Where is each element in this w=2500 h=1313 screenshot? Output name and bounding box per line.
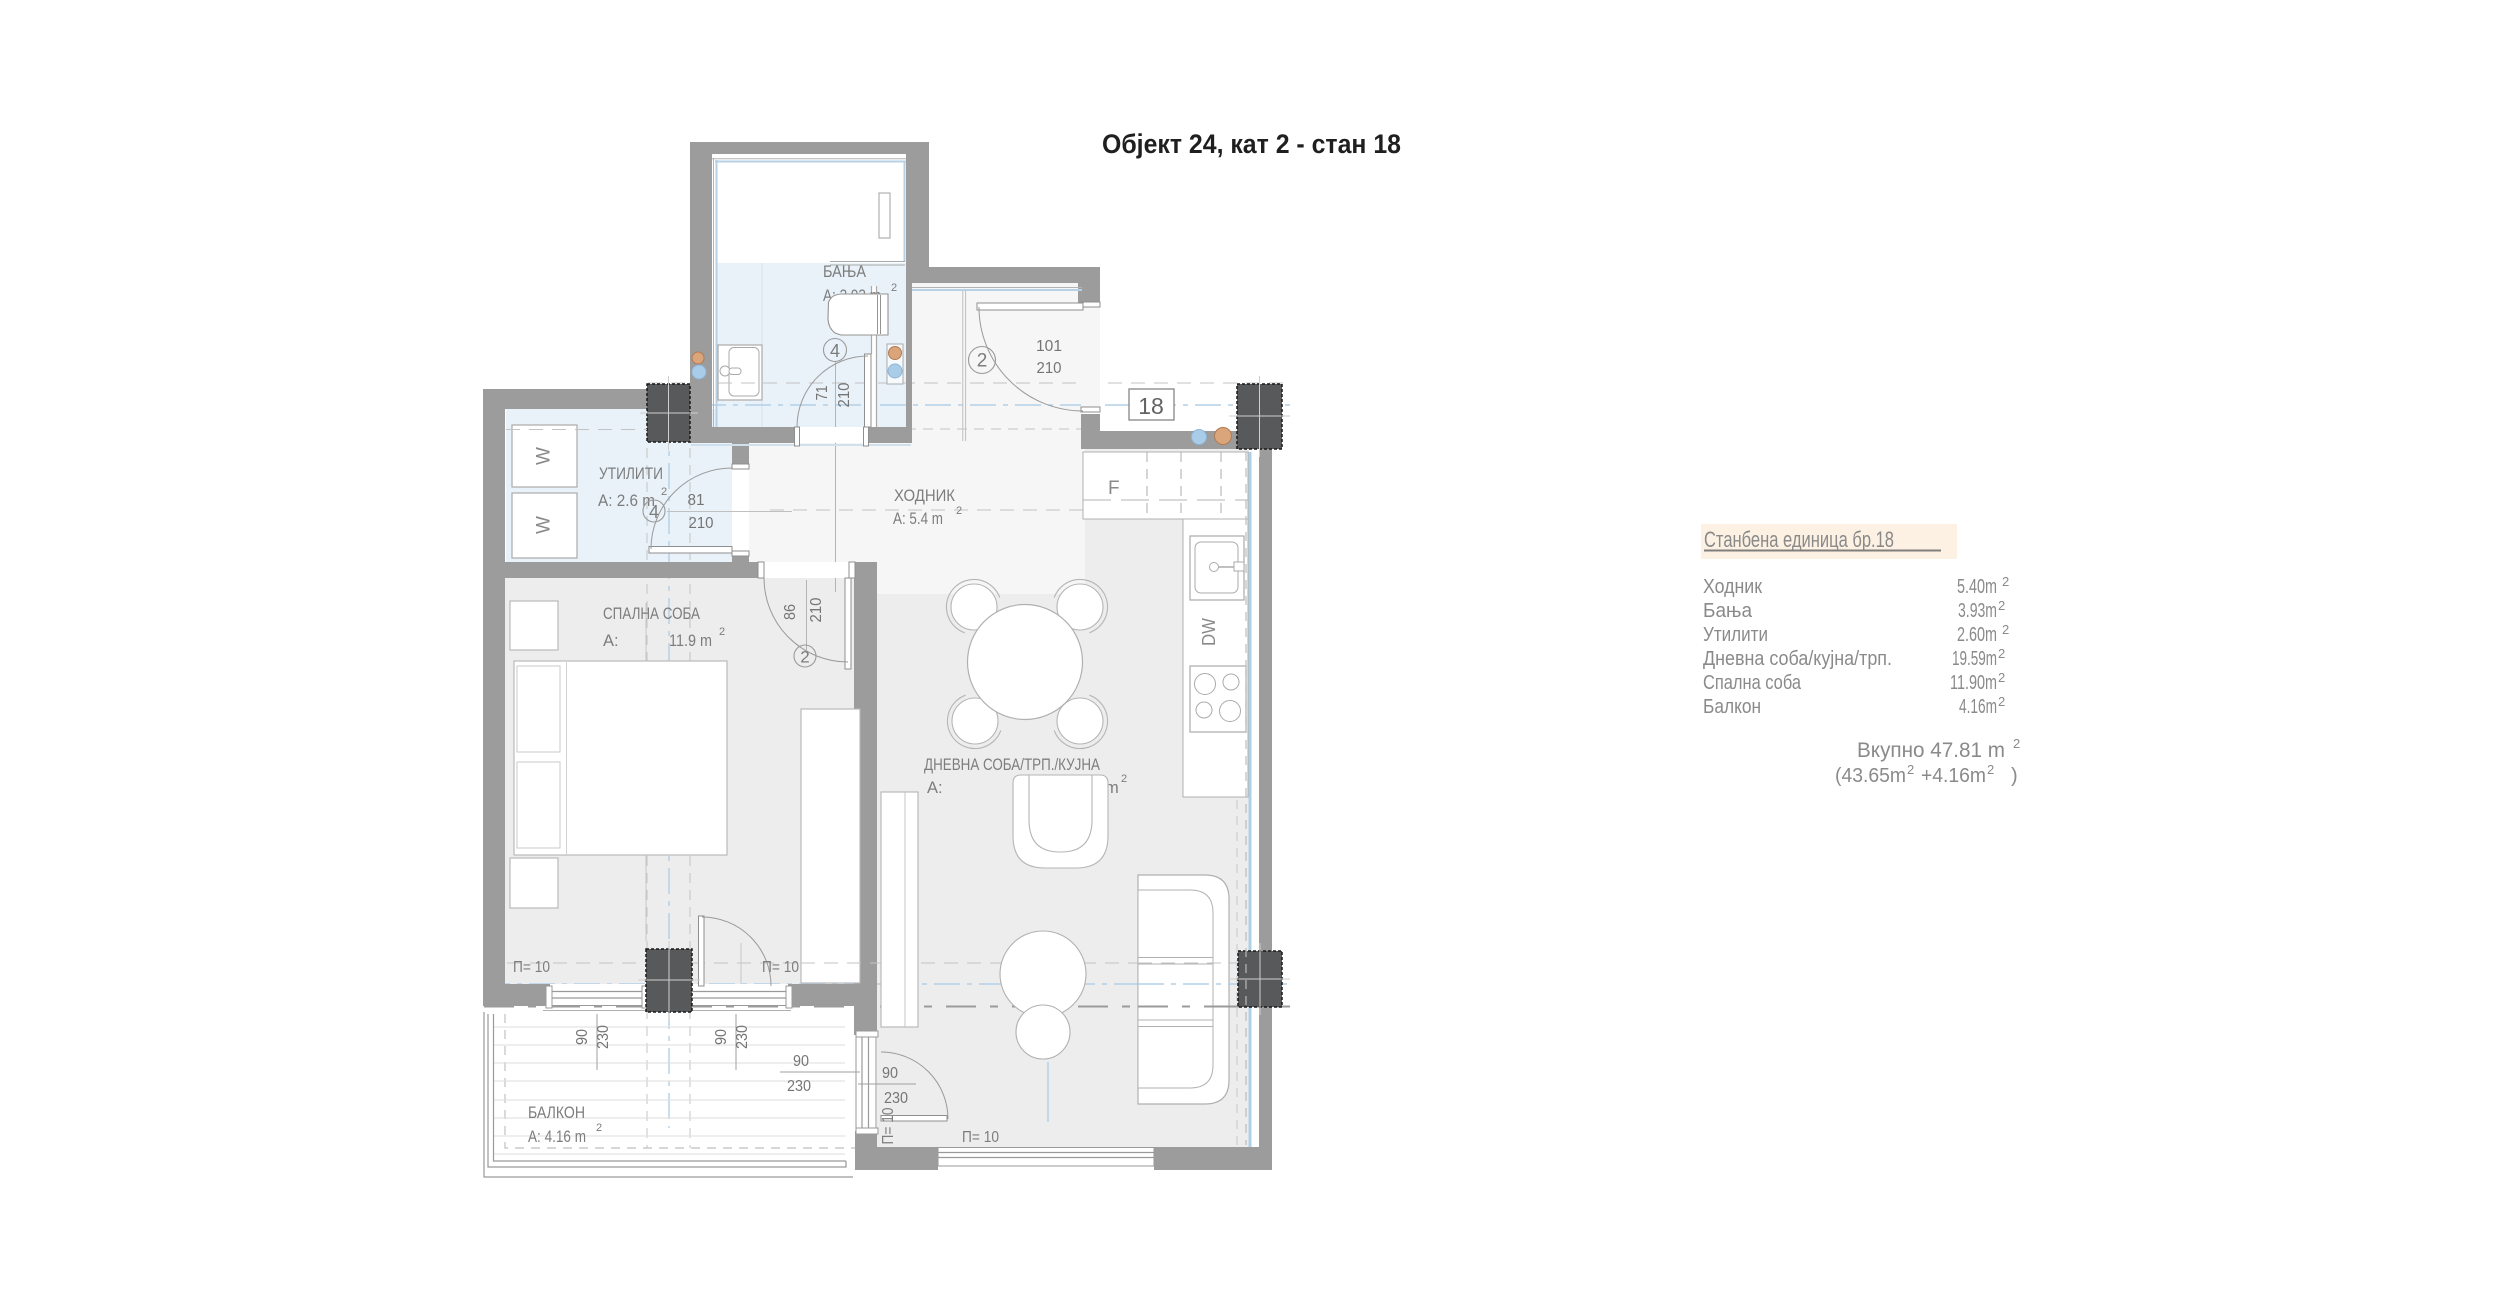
svg-text:Балкон: Балкон <box>1703 696 1761 718</box>
svg-text:СПАЛНА СОБА: СПАЛНА СОБА <box>603 605 700 623</box>
svg-text:БАЛКОН: БАЛКОН <box>528 1104 585 1122</box>
svg-text:3.93m: 3.93m <box>1958 600 1997 622</box>
svg-text:A: 2.6 m: A: 2.6 m <box>598 492 655 510</box>
svg-text:П= 10: П= 10 <box>762 959 799 976</box>
svg-text:Бања: Бања <box>1703 600 1753 622</box>
svg-text:81: 81 <box>688 492 705 509</box>
svg-text:4: 4 <box>649 502 659 522</box>
svg-text:2: 2 <box>1907 762 1914 777</box>
svg-text:11.90m: 11.90m <box>1950 672 1997 694</box>
svg-text:2: 2 <box>1987 762 1994 777</box>
svg-text:18: 18 <box>1138 393 1164 419</box>
svg-text:4: 4 <box>830 341 840 361</box>
svg-text:Утилити: Утилити <box>1703 624 1768 646</box>
svg-text:A: 5.4 m: A: 5.4 m <box>893 510 943 528</box>
svg-text:2: 2 <box>800 648 809 667</box>
svg-text:230: 230 <box>787 1078 811 1095</box>
svg-text:П= 10: П= 10 <box>513 959 550 976</box>
svg-text:230: 230 <box>595 1025 612 1049</box>
svg-text:71: 71 <box>814 385 831 400</box>
svg-text:ДНЕВНА СОБА/ТРП./КУЈНА: ДНЕВНА СОБА/ТРП./КУЈНА <box>924 756 1100 774</box>
svg-text:101: 101 <box>1036 338 1062 355</box>
svg-text:2: 2 <box>2002 574 2009 589</box>
svg-text:(43.65m: (43.65m <box>1835 765 1906 787</box>
svg-text:5.40m: 5.40m <box>1957 576 1997 598</box>
svg-text:A: 4.16 m: A: 4.16 m <box>528 1128 586 1146</box>
svg-text:П= 10: П= 10 <box>962 1129 999 1146</box>
svg-text:230: 230 <box>734 1025 751 1049</box>
svg-text:Станбена единица бр.18: Станбена единица бр.18 <box>1704 527 1894 552</box>
svg-text:2: 2 <box>596 1122 602 1134</box>
svg-text:2: 2 <box>2013 736 2020 751</box>
svg-text:ХОДНИК: ХОДНИК <box>894 487 955 505</box>
svg-text:2: 2 <box>2002 622 2009 637</box>
svg-text:): ) <box>2011 765 2018 787</box>
svg-text:2: 2 <box>1998 598 2005 613</box>
svg-text:210: 210 <box>689 515 714 532</box>
svg-text:2: 2 <box>1998 670 2005 685</box>
svg-text:86: 86 <box>782 604 799 620</box>
svg-text:11.9 m: 11.9 m <box>669 632 712 650</box>
svg-text:УТИЛИТИ: УТИЛИТИ <box>599 465 663 483</box>
svg-text:4.16m: 4.16m <box>1959 696 1997 718</box>
svg-text:90: 90 <box>882 1065 898 1082</box>
svg-text:230: 230 <box>884 1090 908 1107</box>
svg-text:90: 90 <box>793 1053 809 1070</box>
svg-text:2: 2 <box>1998 646 2005 661</box>
svg-text:A:: A: <box>603 632 619 650</box>
svg-text:210: 210 <box>836 382 853 407</box>
svg-text:210: 210 <box>808 597 825 622</box>
svg-text:+4.16m: +4.16m <box>1921 765 1986 787</box>
svg-text:W: W <box>534 516 555 534</box>
svg-text:90: 90 <box>713 1029 730 1045</box>
svg-text:2: 2 <box>956 505 962 517</box>
svg-text:Вкупно 47.81 m: Вкупно 47.81 m <box>1857 739 2005 762</box>
svg-text:Спална соба: Спална соба <box>1703 672 1802 694</box>
svg-text:2: 2 <box>1998 694 2005 709</box>
svg-text:П= 10: П= 10 <box>880 1107 897 1144</box>
svg-text:Објект 24, кат 2 - стан 18: Објект 24, кат 2 - стан 18 <box>1102 129 1401 159</box>
svg-text:БАЊА: БАЊА <box>823 263 866 281</box>
svg-text:W: W <box>534 447 555 465</box>
svg-text:DW: DW <box>1199 618 1219 646</box>
svg-text:Ходник: Ходник <box>1703 576 1762 598</box>
svg-text:A:: A: <box>927 779 943 797</box>
svg-text:Дневна соба/кујна/трп.: Дневна соба/кујна/трп. <box>1703 648 1892 670</box>
svg-text:90: 90 <box>574 1029 591 1045</box>
svg-text:F: F <box>1108 478 1120 499</box>
svg-text:2: 2 <box>1121 773 1127 785</box>
svg-text:19.59m: 19.59m <box>1952 648 1997 670</box>
svg-text:2: 2 <box>719 626 725 638</box>
svg-text:2.60m: 2.60m <box>1957 624 1997 646</box>
svg-text:2: 2 <box>891 282 897 294</box>
svg-text:2: 2 <box>977 351 988 372</box>
svg-text:210: 210 <box>1037 360 1062 377</box>
svg-text:2: 2 <box>661 486 667 498</box>
